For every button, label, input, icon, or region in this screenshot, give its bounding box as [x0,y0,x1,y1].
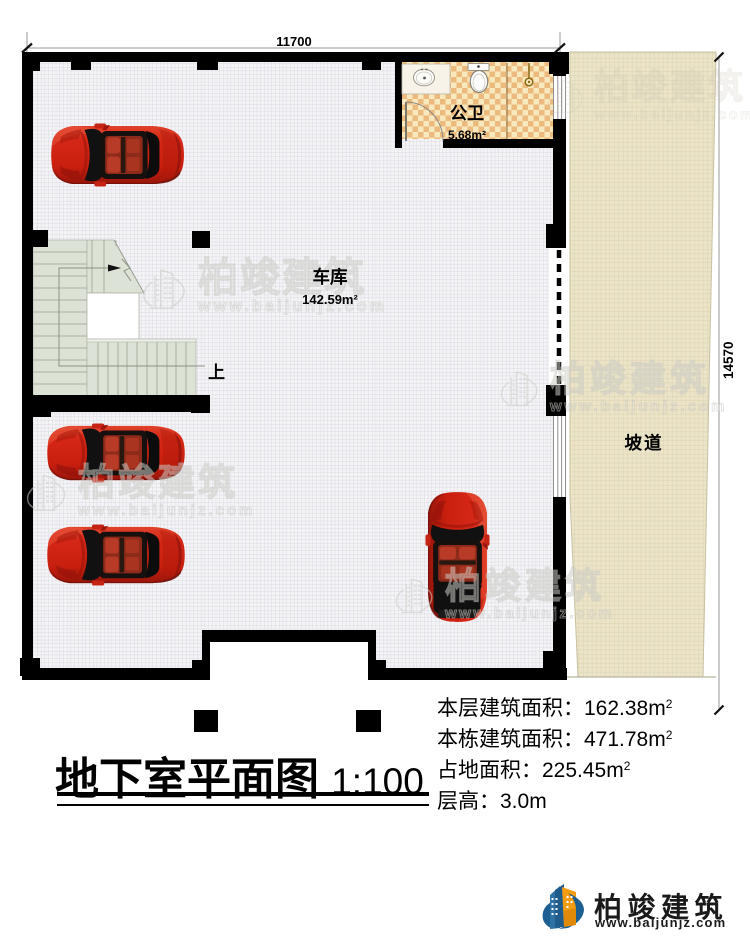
svg-text:14570: 14570 [721,341,736,379]
